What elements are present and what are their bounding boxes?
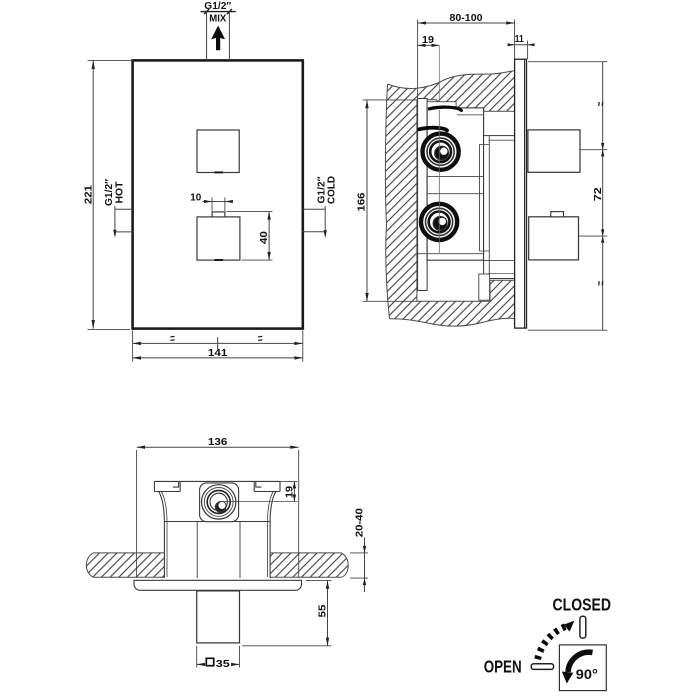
svg-text:72: 72: [593, 187, 604, 202]
svg-text:19: 19: [285, 485, 296, 498]
svg-text:40: 40: [259, 231, 270, 245]
svg-text:11: 11: [515, 34, 524, 45]
svg-text:OPEN: OPEN: [484, 657, 522, 677]
svg-text:35: 35: [216, 658, 230, 670]
svg-text:20-40: 20-40: [355, 508, 366, 538]
svg-text:55: 55: [318, 604, 329, 618]
svg-text:141: 141: [208, 348, 228, 359]
svg-text:COLD: COLD: [327, 176, 338, 204]
svg-text:136: 136: [208, 437, 228, 448]
svg-text:90°: 90°: [576, 667, 598, 682]
svg-text:10: 10: [190, 193, 202, 204]
svg-text:CLOSED: CLOSED: [553, 594, 612, 614]
svg-text:221: 221: [83, 184, 94, 204]
svg-text:80-100: 80-100: [450, 13, 484, 24]
svg-text:19: 19: [422, 35, 435, 46]
svg-text:MIX: MIX: [209, 13, 226, 24]
svg-text:HOT: HOT: [114, 181, 125, 203]
svg-text:166: 166: [357, 192, 368, 212]
